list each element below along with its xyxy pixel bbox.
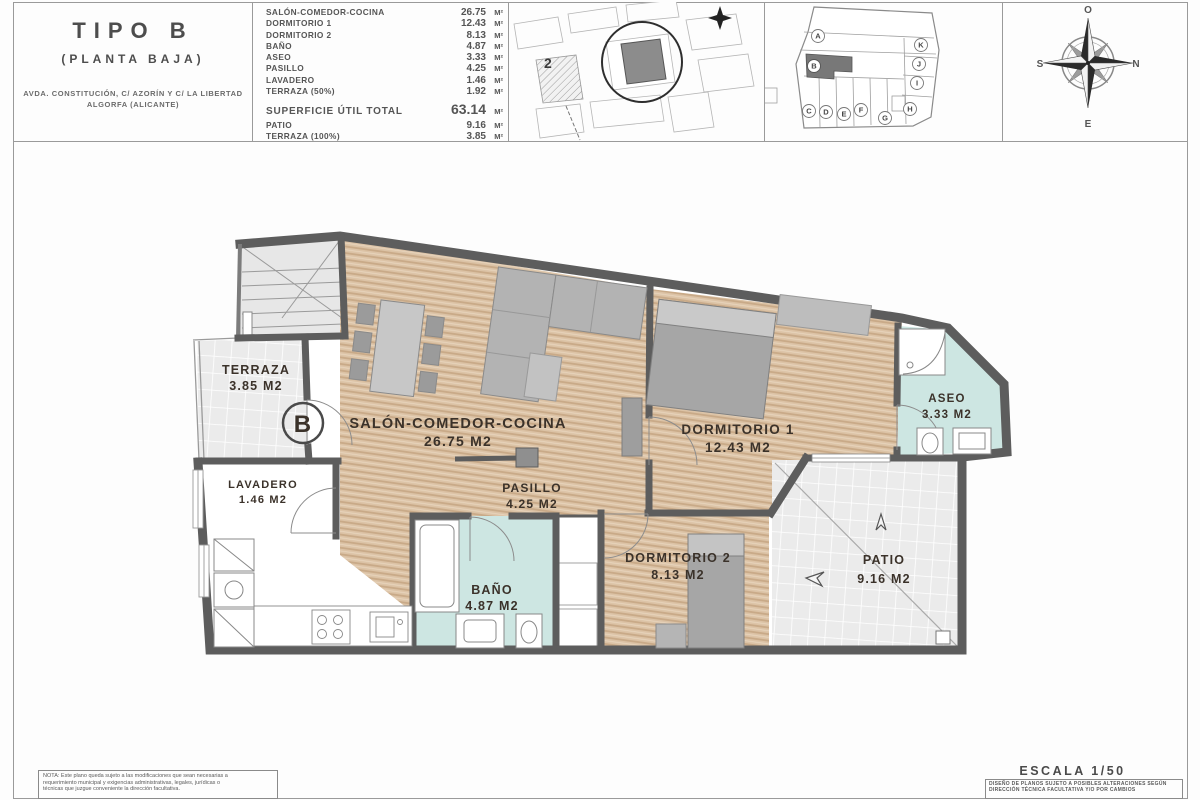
room-area-lavadero: 1.46 M2 — [239, 494, 287, 506]
unit-letter: H — [907, 105, 912, 114]
row-unit: M² — [486, 87, 503, 97]
row-label: ASEO — [266, 52, 440, 62]
room-label-terraza: TERRAZA — [222, 363, 290, 377]
sink-icon — [456, 614, 504, 648]
table-row: TERRAZA (50%)1.92M² — [266, 86, 503, 97]
site-location-map: 2 — [508, 2, 764, 141]
table-row: DORMITORIO 112.43M² — [266, 18, 503, 29]
row-value: 4.25 — [440, 64, 486, 74]
room-label-aseo: ASEO — [928, 393, 965, 405]
laundry-appliances — [214, 539, 254, 647]
plan-sheet: TIPO B (PLANTA BAJA) AVDA. CONSTITUCIÓN,… — [0, 0, 1200, 800]
header-divider — [508, 2, 509, 141]
room-area-bano: 4.87 M2 — [465, 599, 519, 613]
header-divider — [764, 2, 765, 141]
table-row: BAÑO4.87M² — [266, 41, 503, 52]
unit-letter: C — [806, 107, 812, 116]
note-line-1: NOTA: Este plano queda sujeto a las modi… — [43, 773, 273, 780]
project-address: AVDA. CONSTITUCIÓN, C/ AZORÍN Y C/ LA LI… — [14, 88, 252, 110]
compass-icon — [1043, 18, 1133, 108]
unit-marker-letter: B — [294, 411, 313, 438]
table-row: ASEO3.33M² — [266, 52, 503, 63]
row-unit: M² — [486, 31, 503, 41]
row-value: 1.46 — [440, 76, 486, 86]
room-area-dorm2: 8.13 M2 — [651, 568, 705, 582]
row-label: BAÑO — [266, 41, 440, 51]
row-value: 8.13 — [440, 31, 486, 41]
row-unit: M² — [486, 42, 503, 52]
bed-dorm1 — [646, 299, 776, 419]
row-label: LAVADERO — [266, 75, 440, 85]
shower-icon — [899, 329, 945, 375]
note-box: NOTA: Este plano queda sujeto a las modi… — [38, 770, 278, 799]
room-area-terraza: 3.85 M2 — [229, 379, 283, 393]
tv-unit — [622, 398, 642, 456]
unit-letter: B — [811, 62, 817, 71]
floor-plan: B TERRAZA 3.85 M2 SALÓN-COMEDOR-COCINA 2… — [0, 142, 1200, 800]
room-area-aseo: 3.33 M2 — [922, 409, 972, 421]
address-line-2: ALGORFA (ALICANTE) — [14, 99, 252, 110]
note-line-2: requerimiento municipal y exigencias adm… — [43, 780, 273, 787]
compass-rose: O N E S — [1002, 2, 1187, 141]
table-row: LAVADERO1.46M² — [266, 75, 503, 86]
unit-letter: G — [882, 114, 888, 123]
room-area-pasillo: 4.25 M2 — [506, 497, 558, 511]
room-label-salon: SALÓN-COMEDOR-COCINA — [349, 414, 566, 432]
plot-number: 2 — [544, 55, 552, 71]
address-line-1: AVDA. CONSTITUCIÓN, C/ AZORÍN Y C/ LA LI… — [14, 88, 252, 99]
toilet-icon — [917, 428, 943, 455]
unit-letter: K — [918, 41, 924, 50]
stairs-left-wall — [238, 244, 240, 338]
total-value: 63.14 — [440, 104, 486, 114]
unit-letter: J — [917, 60, 921, 69]
row-value: 9.16 — [440, 121, 486, 131]
row-unit: M² — [486, 64, 503, 74]
areas-table: SALÓN-COMEDOR-COCINA26.75M² DORMITORIO 1… — [266, 7, 503, 142]
table-row: SALÓN-COMEDOR-COCINA26.75M² — [266, 7, 503, 18]
building-key-plan: A B K J I C D E F G H — [764, 2, 1002, 141]
terraza-floor — [197, 337, 309, 461]
row-label: PASILLO — [266, 63, 440, 73]
row-unit: M² — [486, 76, 503, 86]
unit-letter: D — [823, 108, 829, 117]
compass-label-right: N — [1132, 59, 1139, 70]
note-line-3: técnicas que juzgue conveniente la direc… — [43, 786, 273, 793]
compass-label-bottom: E — [1085, 119, 1092, 130]
unit-letter: F — [859, 106, 864, 115]
row-value: 4.87 — [440, 42, 486, 52]
table-row: PATIO9.16M² — [266, 120, 503, 131]
room-label-lavadero: LAVADERO — [228, 479, 298, 491]
row-label: TERRAZA (50%) — [266, 86, 440, 96]
row-label: TERRAZA (100%) — [266, 131, 440, 141]
room-area-dorm1: 12.43 M2 — [705, 440, 771, 455]
disclaimer-line-2: DIRECCIÓN TÉCNICA FACULTATIVA Y/O POR CA… — [989, 787, 1179, 793]
scale-label: ESCALA 1/50 — [1000, 764, 1145, 778]
row-label: DORMITORIO 2 — [266, 30, 440, 40]
closet — [559, 563, 597, 647]
disclaimer-box: DISEÑO DE PLANOS SUJETO A POSIBLES ALTER… — [985, 779, 1183, 799]
table-row: PASILLO4.25M² — [266, 63, 503, 74]
room-label-pasillo: PASILLO — [502, 481, 562, 495]
highlighted-plot — [621, 39, 666, 84]
room-area-salon: 26.75 M2 — [424, 433, 492, 449]
kitchen-counter — [254, 606, 412, 646]
total-label: SUPERFICIE ÚTIL TOTAL — [266, 107, 440, 117]
compass-label-left: S — [1037, 59, 1044, 70]
title-block: TIPO B (PLANTA BAJA) AVDA. CONSTITUCIÓN,… — [14, 2, 252, 141]
compass-label-top: O — [1084, 5, 1092, 16]
plan-floor-subtitle: (PLANTA BAJA) — [14, 52, 252, 66]
row-label: PATIO — [266, 120, 440, 130]
row-unit: M² — [486, 8, 503, 18]
row-unit: M² — [486, 121, 503, 131]
table-row: DORMITORIO 28.13M² — [266, 30, 503, 41]
row-unit: M² — [486, 53, 503, 63]
unit-letter: I — [916, 79, 918, 88]
row-label: DORMITORIO 1 — [266, 18, 440, 28]
bathtub-icon — [415, 520, 459, 612]
room-label-dorm1: DORMITORIO 1 — [681, 422, 794, 437]
total-unit: M² — [486, 107, 503, 117]
row-value: 1.92 — [440, 87, 486, 97]
row-label: SALÓN-COMEDOR-COCINA — [266, 7, 440, 17]
row-value: 12.43 — [440, 19, 486, 29]
header-divider — [1002, 2, 1003, 141]
room-area-patio: 9.16 M2 — [857, 572, 911, 586]
drain-grate-icon — [936, 631, 950, 644]
table-total-row: SUPERFICIE ÚTIL TOTAL63.14M² — [266, 104, 503, 117]
stove-icon — [312, 610, 350, 644]
row-value: 26.75 — [440, 8, 486, 18]
row-value: 3.33 — [440, 53, 486, 63]
header-divider — [252, 2, 253, 141]
coffee-table — [524, 353, 562, 401]
room-label-bano: BAÑO — [471, 582, 513, 597]
row-unit: M² — [486, 19, 503, 29]
unit-letter: A — [815, 32, 821, 41]
room-label-dorm2: DORMITORIO 2 — [625, 551, 731, 565]
dresser-dorm2 — [656, 624, 686, 648]
room-label-patio: PATIO — [863, 553, 905, 567]
plan-type-title: TIPO B — [14, 18, 252, 44]
unit-letter: E — [841, 110, 846, 119]
